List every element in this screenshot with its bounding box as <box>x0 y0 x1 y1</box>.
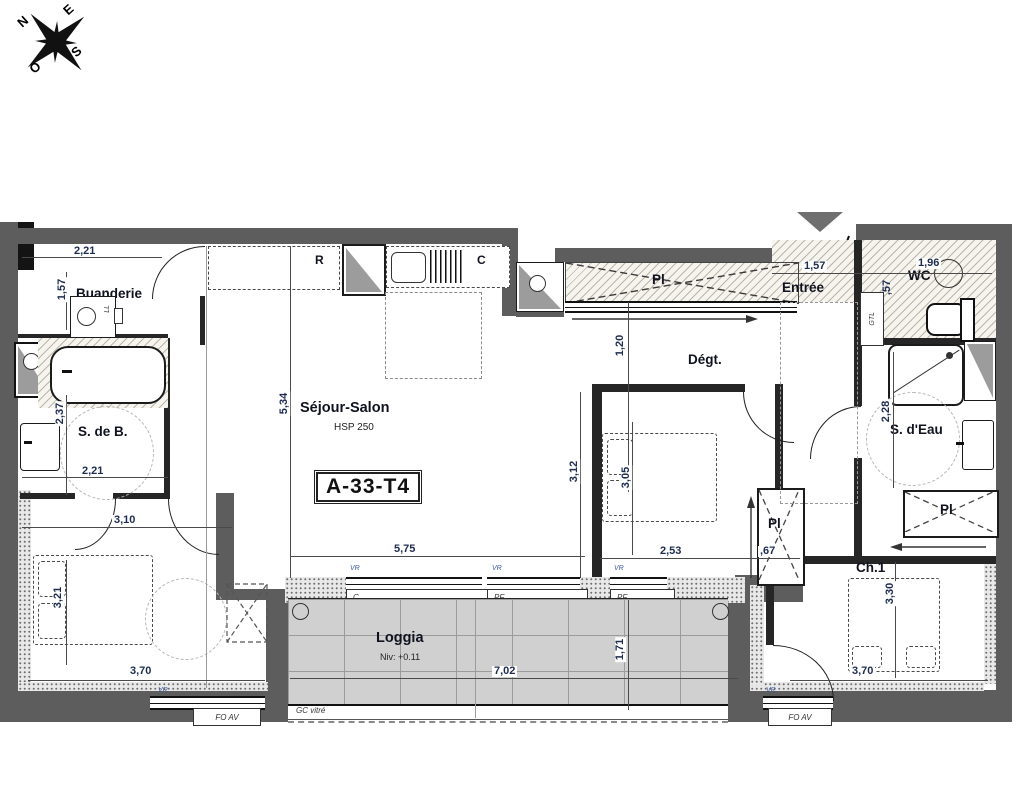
vr-label-1: VR <box>350 565 360 572</box>
dim-wc-w: 1,96 <box>916 258 941 269</box>
vr-label-5: VR <box>766 687 776 694</box>
entrance-arrow-icon <box>797 212 843 232</box>
kitchen-sink <box>391 252 426 283</box>
dimline-ch1-h <box>895 562 896 678</box>
dim-entree-w: 1,57 <box>802 261 827 272</box>
dim-gtl-w: ,57 <box>882 278 893 297</box>
dim-hall-w: 3,10 <box>112 515 137 526</box>
shaft-kitchen-circle <box>529 275 546 292</box>
dimline-ch2-h <box>580 392 581 578</box>
ch1-foav-labelbox: FO AV <box>768 708 832 726</box>
ch3-closet-cross <box>226 583 268 643</box>
kitchen-window <box>342 244 386 296</box>
wall-top-left <box>18 228 518 244</box>
washing-machine: LL <box>70 296 116 338</box>
shaft-sdeau-triangle <box>967 344 993 398</box>
sejour-label: Séjour-Salon <box>300 400 389 416</box>
dimline-sdb-w <box>22 477 168 478</box>
dimline-buanderie-w <box>22 257 162 258</box>
dimline-ch3-w <box>28 680 265 681</box>
dim-ch1-h: 3,30 <box>885 581 896 606</box>
loggia-level-label: Niv: +0.11 <box>380 652 420 662</box>
placard-sdeau-label: Pl <box>940 502 953 517</box>
placard-hall-hatch <box>565 262 799 304</box>
dim-degt-w: 1,20 <box>615 333 626 358</box>
extension-line-v1 <box>206 246 207 688</box>
gtl-box: GTL <box>860 292 884 346</box>
insulation-right <box>984 556 996 684</box>
dimline-loggia-h <box>628 600 629 710</box>
partition-buanderie <box>200 296 205 345</box>
loggia-bottom-dashed <box>288 721 728 723</box>
kitchen-island-dashed <box>385 292 482 379</box>
wall-sejour-ch2 <box>592 384 602 580</box>
extension-line-v2 <box>475 600 476 718</box>
floor-plan: N E S O <box>0 0 1018 800</box>
sdb-door-arc <box>75 499 116 550</box>
compass-star-icon <box>8 0 104 86</box>
ch1-pillow-2 <box>906 646 936 668</box>
entree-label: Entrée <box>782 280 824 295</box>
dimline-entree-wc <box>772 273 992 274</box>
shower-drain <box>946 352 953 359</box>
dimline-sejour-w <box>290 556 585 557</box>
kitchen-window-triangle <box>346 248 382 292</box>
toilet-tank <box>960 298 975 342</box>
sejour-hsp-label: HSP 250 <box>334 422 374 433</box>
dim-sdb-h: 2,37 <box>55 401 66 426</box>
wall-top-right <box>856 224 1012 240</box>
shaft-kitchen <box>516 262 564 312</box>
vr-label-4: VR <box>158 687 168 694</box>
dim-ch2-h: 3,12 <box>569 459 580 484</box>
gc-vitre-label: GC vitré <box>296 706 325 715</box>
kitchen-fridge-label: R <box>315 253 324 267</box>
ch1-door-arc <box>773 645 834 701</box>
dim-sejour-w: 5,75 <box>392 544 417 555</box>
washing-machine-label: LL <box>103 305 112 313</box>
dim-sdb-w: 2,21 <box>80 466 105 477</box>
gtl-label: GTL <box>868 312 877 326</box>
loggia-drain-right <box>712 603 729 620</box>
dim-ch3-w: 3,70 <box>128 666 153 677</box>
sdeau-washbasin <box>962 420 994 470</box>
ch3-foav-label: FO AV <box>215 713 238 722</box>
buanderie-door-arc <box>152 246 205 299</box>
loggia-label: Loggia <box>376 630 424 646</box>
ch1-label: Ch.1 <box>856 560 885 575</box>
dim-buanderie-h: 1,57 <box>57 277 68 302</box>
ch1-foav-label: FO AV <box>788 713 811 722</box>
placard-hall-slide-arrow <box>570 312 760 326</box>
compass-rose: N E S O <box>8 0 104 86</box>
gc-vitre-band <box>288 704 728 720</box>
loggia-drain-left <box>292 603 309 620</box>
wall-loggia-left <box>266 589 288 722</box>
dimline-hall-w <box>22 527 232 528</box>
wc-label: WC <box>908 268 931 283</box>
dimline-ch3-h <box>66 560 67 665</box>
degagement-label: Dégt. <box>688 352 722 367</box>
vr-label-2: VR <box>492 565 502 572</box>
dim-pl-ch2-w: ,67 <box>758 546 777 557</box>
loggia-floor <box>288 598 728 705</box>
wall-left <box>0 222 18 722</box>
sdb-turning-circle <box>60 406 154 500</box>
dim-sejour-h: 5,34 <box>279 391 290 416</box>
kitchen-hob <box>430 250 462 283</box>
dim-ch1-w: 3,70 <box>850 666 875 677</box>
bathtub-tap <box>62 370 72 373</box>
ch2-placard-slide-arrow <box>744 496 758 580</box>
wall-ch2-top <box>592 384 745 392</box>
dim-loggia-h: 1,71 <box>615 637 626 662</box>
dim-ch2-bed-h: 3,05 <box>621 465 632 490</box>
kitchen-c-label: C <box>477 253 486 267</box>
sdeau-placard-slide-arrow <box>888 540 988 554</box>
ch3-turning-circle <box>145 578 227 660</box>
dimline-ch1-w <box>790 680 988 681</box>
sdeau-washbasin-tap <box>956 442 964 445</box>
unit-label: A-33-T4 <box>316 472 420 502</box>
bathtub <box>50 346 166 404</box>
wall-right <box>996 224 1012 722</box>
insulation-loggia-right <box>750 585 764 685</box>
dim-buanderie-w: 2,21 <box>72 246 97 257</box>
dim-sdeau-h: 2,28 <box>881 399 892 424</box>
sdb-washbasin-tap <box>24 441 32 444</box>
insulation-bottom-left <box>18 682 268 691</box>
placard-hall-label: Pl <box>652 272 665 287</box>
placard-ch2-label: Pl <box>768 516 781 531</box>
wall-top-middle <box>555 248 780 262</box>
shaft-sdeau <box>964 341 996 401</box>
dimline-sdeau-h <box>893 352 894 488</box>
dimline-degt-w <box>628 302 629 492</box>
washing-machine-tap <box>114 308 123 324</box>
dim-ch3-h: 3,21 <box>53 585 64 610</box>
ch3-foav-labelbox: FO AV <box>193 708 261 726</box>
placard-hall-cross <box>566 263 798 303</box>
vr-label-3: VR <box>614 565 624 572</box>
wall-loggia-right <box>728 583 750 722</box>
dim-loggia-w: 7,02 <box>492 666 517 677</box>
sdb-washbasin <box>20 423 60 471</box>
insulation-left <box>18 490 31 690</box>
washing-machine-drum <box>77 307 96 326</box>
dimline-ch2-w <box>600 558 800 559</box>
entree-dashed-zone <box>780 302 858 504</box>
wall-ch1-left <box>766 582 774 645</box>
dim-ch2-w: 2,53 <box>658 546 683 557</box>
dimline-loggia-w <box>290 678 738 679</box>
